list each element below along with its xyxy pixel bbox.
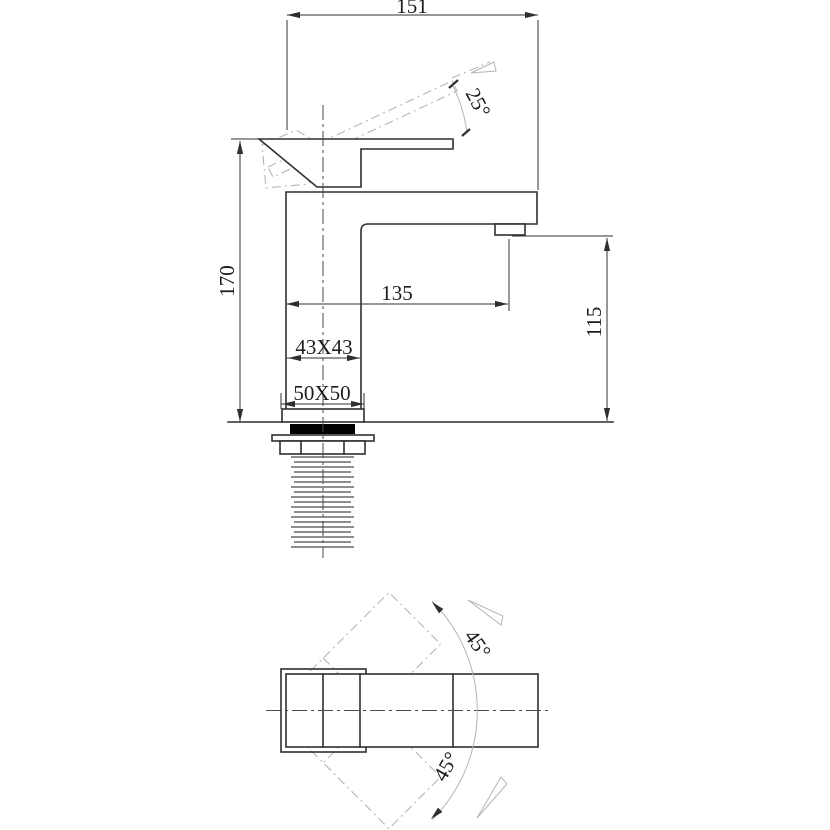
dimension-115: 115 — [512, 236, 613, 421]
dim-151-label: 151 — [396, 0, 428, 18]
handle-lever — [259, 139, 453, 187]
dimension-50x50: 50X50 — [281, 381, 364, 409]
dim-45deg-upper-label: 45° — [459, 625, 496, 663]
aerator — [495, 224, 525, 235]
dimension-170: 170 — [215, 139, 258, 422]
plan-view: 45° 45° — [266, 592, 552, 828]
dimension-25deg: 25° — [449, 62, 496, 136]
dim-50x50-label: 50X50 — [293, 381, 350, 405]
dimension-43x43: 43X43 — [287, 335, 360, 361]
dim-135-label: 135 — [381, 281, 413, 305]
dim-25deg-label: 25° — [461, 84, 496, 121]
dim-170-label: 170 — [215, 265, 239, 297]
technical-drawing-page: 151 25° 170 135 115 — [0, 0, 830, 830]
dim-43x43-label: 43X43 — [295, 335, 352, 359]
dimension-135: 135 — [286, 239, 509, 311]
faucet-dimension-drawing: 151 25° 170 135 115 — [0, 0, 830, 830]
front-view: 151 25° 170 135 115 — [215, 0, 613, 558]
dim-115-label: 115 — [582, 307, 606, 338]
dim-45deg-lower-label: 45° — [428, 748, 463, 785]
